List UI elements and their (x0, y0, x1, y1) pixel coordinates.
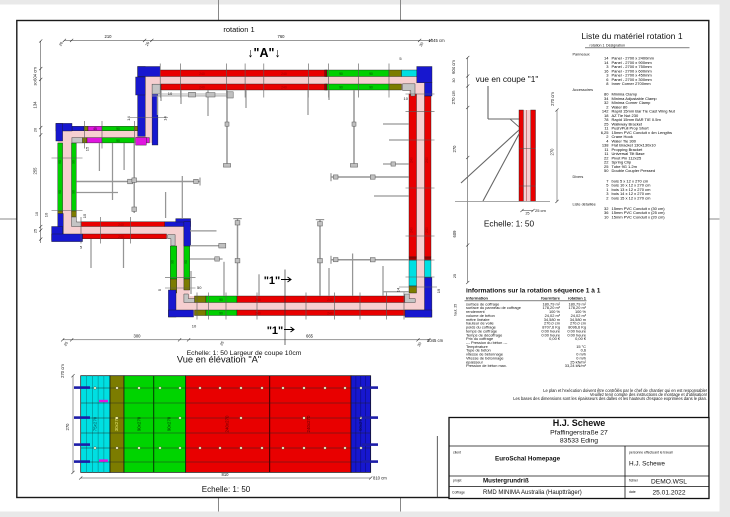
svg-text:50: 50 (604, 168, 609, 173)
svg-text:134: 134 (33, 101, 38, 109)
svg-text:Mustergrundriß: Mustergrundriß (483, 478, 529, 485)
svg-text:90x270: 90x270 (167, 416, 172, 431)
svg-text:0,00 €: 0,00 € (575, 336, 587, 341)
svg-text:Les bases des dimensions sont: Les bases des dimensions sont les épaiss… (513, 396, 707, 401)
svg-text:↓"A"↓: ↓"A"↓ (247, 46, 280, 60)
svg-text:rotation 1: rotation 1 (223, 25, 254, 34)
svg-text:rotation 1: rotation 1 (590, 44, 605, 48)
svg-text:15: 15 (82, 213, 87, 218)
svg-text:90: 90 (219, 312, 223, 316)
svg-text:25 cm: 25 cm (535, 208, 547, 213)
svg-text:rotation 1: rotation 1 (568, 296, 587, 301)
svg-text:25: 25 (34, 229, 38, 233)
svg-text:25: 25 (453, 274, 457, 278)
svg-text:"1": "1" (264, 275, 281, 287)
svg-text:240x270: 240x270 (225, 415, 230, 432)
svg-text:10: 10 (35, 212, 39, 216)
svg-text:33,24 kN/m²: 33,24 kN/m² (565, 363, 587, 368)
svg-text:10: 10 (168, 91, 173, 96)
svg-text:Inner Corner 2700mm: Inner Corner 2700mm (612, 81, 652, 86)
svg-text:informations sur la rotation: informations sur la rotation séquence 1 … (466, 288, 601, 295)
svg-text:Liste du matériel rotation 1: Liste du matériel rotation 1 (581, 31, 682, 41)
svg-text:Panneaux: Panneaux (573, 53, 590, 57)
svg-text:30x270: 30x270 (114, 416, 119, 431)
svg-text:270: 270 (550, 148, 555, 156)
svg-text:240: 240 (255, 298, 261, 302)
svg-text:Coffrage: Coffrage (452, 491, 465, 495)
svg-text:H.J. Schewe: H.J. Schewe (629, 461, 665, 468)
svg-text:Liste détaillée: Liste détaillée (573, 203, 596, 207)
svg-text:270 cm: 270 cm (550, 92, 555, 106)
svg-text:bois 15 x 12 x 270 cm: bois 15 x 12 x 270 cm (612, 195, 652, 200)
svg-text:Double Coupler Pressed: Double Coupler Pressed (612, 168, 656, 173)
svg-text:90: 90 (339, 86, 343, 90)
svg-text:45: 45 (93, 127, 97, 131)
svg-text:240: 240 (410, 157, 414, 163)
svg-text:client: client (453, 451, 461, 455)
svg-text:19: 19 (436, 288, 441, 293)
svg-text:10: 10 (404, 96, 409, 101)
svg-text:210: 210 (105, 34, 113, 39)
svg-text:DEMO.WSL: DEMO.WSL (651, 479, 687, 486)
svg-text:240: 240 (327, 298, 333, 302)
svg-text:90: 90 (339, 72, 343, 76)
svg-text:90: 90 (184, 260, 188, 264)
svg-text:personne effectuant le travail: personne effectuant le travail (629, 451, 673, 455)
svg-text:20: 20 (34, 128, 38, 132)
svg-text:240: 240 (425, 157, 429, 163)
svg-text:240: 240 (255, 312, 261, 316)
svg-text:haut. 25: haut. 25 (454, 304, 458, 316)
svg-text:H.J. Schewe: H.J. Schewe (553, 418, 606, 428)
svg-text:vue en coupe "1": vue en coupe "1" (476, 74, 539, 84)
svg-text:RMD MINIMA Australia (Hauptträ: RMD MINIMA Australia (Hauptträger) (483, 490, 582, 496)
svg-text:240: 240 (425, 227, 429, 233)
svg-text:EuroSchal Homepage: EuroSchal Homepage (495, 456, 561, 463)
svg-text:90: 90 (171, 260, 175, 264)
svg-text:810: 810 (222, 472, 230, 477)
svg-text:240: 240 (199, 86, 205, 90)
svg-text:25.01.2022: 25.01.2022 (652, 490, 685, 497)
svg-text:90: 90 (116, 127, 120, 131)
svg-text:14: 14 (163, 116, 168, 121)
svg-text:240: 240 (281, 86, 287, 90)
svg-text:fichier: fichier (629, 479, 639, 483)
svg-text:Pression de béton max.: Pression de béton max. (466, 363, 507, 368)
svg-text:240: 240 (281, 72, 287, 76)
svg-text:270: 270 (65, 423, 70, 431)
svg-text:Accessoires: Accessoires (573, 88, 594, 92)
svg-text:date: date (629, 490, 636, 494)
svg-text:90: 90 (219, 298, 223, 302)
svg-text:270 cm: 270 cm (451, 90, 456, 104)
svg-text:Désignation: Désignation (606, 44, 625, 48)
svg-text:90: 90 (58, 190, 62, 194)
svg-text:0,00 €: 0,00 € (549, 336, 561, 341)
svg-text:270: 270 (452, 145, 457, 153)
svg-text:14: 14 (396, 287, 401, 292)
svg-text:255: 255 (33, 167, 38, 175)
svg-text:609: 609 (452, 230, 457, 238)
svg-text:90: 90 (369, 72, 373, 76)
svg-text:75x270: 75x270 (93, 416, 98, 431)
svg-text:30: 30 (452, 78, 456, 82)
svg-text:270 cm: 270 cm (60, 364, 65, 378)
svg-text:90: 90 (58, 160, 62, 164)
svg-text:240: 240 (118, 235, 124, 239)
svg-text:Pfaffingerstraße 27: Pfaffingerstraße 27 (550, 430, 608, 437)
svg-text:30: 30 (34, 81, 38, 85)
svg-text:50: 50 (197, 285, 202, 290)
svg-text:1045 cm: 1045 cm (429, 38, 446, 43)
svg-text:fourniture: fourniture (541, 296, 561, 301)
svg-text:Echelle: 1: 50: Echelle: 1: 50 (202, 485, 251, 494)
svg-text:240: 240 (327, 312, 333, 316)
svg-text:information: information (466, 296, 489, 301)
svg-text:15mm PVC Conduit x (20 cm): 15mm PVC Conduit x (20 cm) (612, 214, 666, 219)
svg-text:240: 240 (410, 227, 414, 233)
svg-text:"1": "1" (267, 325, 284, 337)
svg-text:14: 14 (126, 116, 131, 121)
svg-text:Vue en élévation "A": Vue en élévation "A" (177, 355, 261, 365)
svg-text:604 cm: 604 cm (451, 60, 456, 74)
svg-text:10: 10 (192, 324, 197, 329)
svg-text:Divers: Divers (573, 175, 584, 179)
svg-text:Echelle: 1: 50: Echelle: 1: 50 (484, 219, 535, 229)
svg-text:90: 90 (71, 160, 75, 164)
svg-text:665: 665 (306, 333, 314, 338)
svg-text:10: 10 (44, 212, 49, 217)
svg-text:604 cm: 604 cm (33, 67, 38, 81)
svg-text:projet: projet (453, 479, 462, 483)
svg-text:15: 15 (85, 146, 90, 151)
svg-text:240: 240 (118, 223, 124, 227)
svg-text:90x270: 90x270 (358, 416, 363, 430)
svg-text:83533 Eding: 83533 Eding (560, 438, 598, 445)
svg-text:1045 cm: 1045 cm (427, 338, 444, 343)
svg-text:10: 10 (604, 214, 609, 219)
svg-text:90: 90 (116, 139, 120, 143)
svg-text:760: 760 (278, 34, 286, 39)
svg-text:90x270: 90x270 (137, 416, 142, 431)
svg-text:300: 300 (134, 333, 142, 338)
svg-text:25: 25 (526, 212, 530, 216)
svg-text:810 cm: 810 cm (373, 476, 387, 481)
svg-text:90: 90 (369, 86, 373, 90)
svg-text:90: 90 (71, 190, 75, 194)
svg-text:240: 240 (199, 72, 205, 76)
svg-text:240x270: 240x270 (306, 415, 311, 432)
